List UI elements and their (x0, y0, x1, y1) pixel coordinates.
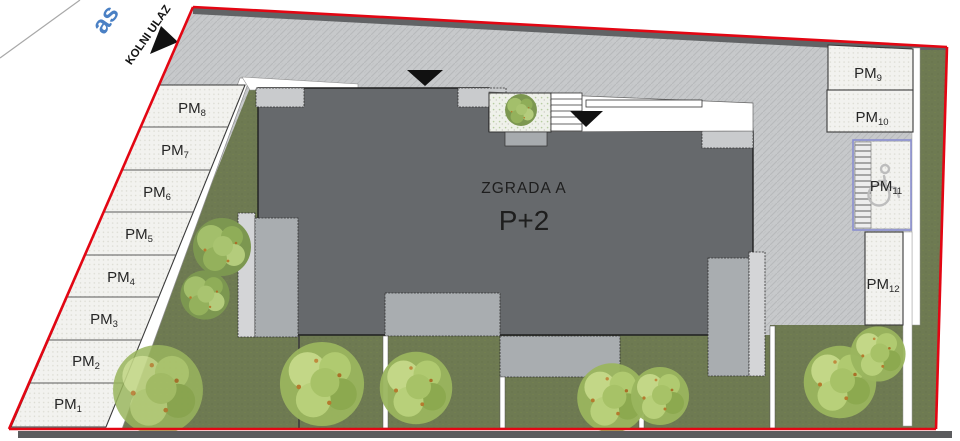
street-label: as (86, 0, 125, 39)
street-edge-line (0, 0, 80, 58)
terrace (708, 258, 749, 376)
entrance-railing (586, 100, 702, 107)
bottom-sidewalk-strip (18, 431, 952, 438)
terrace (255, 218, 298, 337)
terrace (256, 88, 304, 107)
building-floors-label: P+2 (499, 205, 550, 236)
planter-tree (505, 94, 537, 126)
planter-base (505, 132, 547, 146)
site-plan-drawing: as KOLNI ULAZ (0, 0, 960, 441)
right-garden-divider-walk (903, 232, 912, 426)
terrace (385, 293, 500, 336)
terrace (749, 252, 765, 376)
building-name-label: ZGRADA A (481, 180, 567, 197)
site-plan-canvas: as KOLNI ULAZ (0, 0, 960, 441)
access-ramp (855, 142, 871, 228)
